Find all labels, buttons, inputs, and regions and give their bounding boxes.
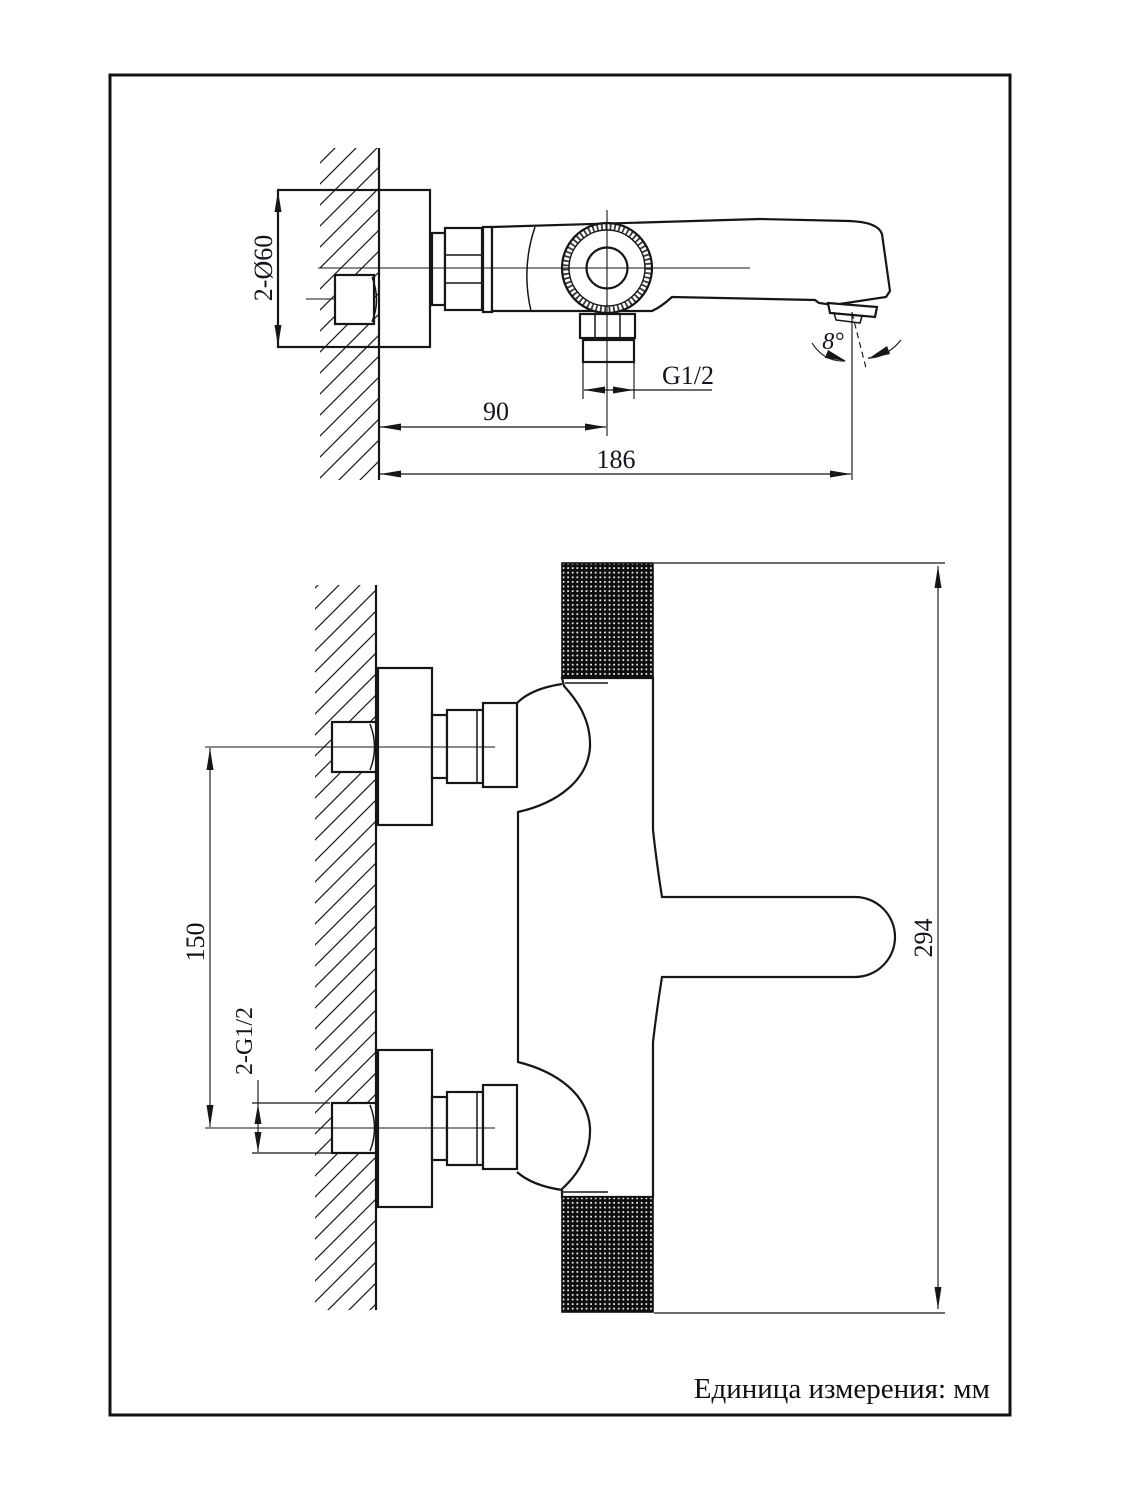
dim-wall-to-outlet: 90	[380, 397, 606, 431]
side-view: 2-Ø60 G1/2 90 186	[249, 148, 901, 480]
connector-collar	[483, 227, 492, 312]
connector-block-bottom	[483, 1085, 517, 1169]
body-shoulder-top	[517, 684, 562, 703]
dim-label-outlet-thread: G1/2	[662, 361, 714, 390]
supply-fitting	[335, 275, 374, 324]
outlet-thread-pipe	[583, 340, 634, 362]
faucet-body-spout	[492, 219, 890, 311]
faucet-body-plan	[518, 678, 895, 1197]
body-shoulder-bottom	[517, 1172, 562, 1190]
dim-outlet-thread: G1/2	[583, 361, 714, 399]
technical-drawing-svg: 2-Ø60 G1/2 90 186	[0, 0, 1125, 1500]
connector-nut	[445, 228, 482, 310]
dim-label-overall-length: 294	[909, 919, 938, 958]
drawing-sheet: 2-Ø60 G1/2 90 186	[0, 0, 1125, 1500]
connector-block-top	[483, 703, 517, 787]
wall-hatch	[315, 585, 376, 1310]
dim-label-inlet-thread: 2-G1/2	[232, 1007, 258, 1075]
dim-label-spout-angle: 8°	[822, 329, 844, 355]
unit-note: Единица измерения: мм	[694, 1373, 990, 1405]
connector-neck	[432, 233, 445, 305]
dim-label-plate-diameter: 2-Ø60	[249, 235, 278, 301]
knurled-handle-bottom	[562, 1197, 653, 1312]
dim-label-inlet-center-distance: 150	[181, 923, 210, 962]
dim-label-wall-to-outlet: 90	[483, 397, 509, 426]
dim-inlet-center-distance: 150	[181, 748, 214, 1127]
dim-spout-angle: 8°	[812, 313, 901, 368]
knurled-handle-top	[562, 563, 653, 678]
plan-view: 294 150 2-G1/2	[181, 563, 945, 1313]
dim-label-wall-to-spout-tip: 186	[597, 445, 636, 474]
dim-plate-diameter: 2-Ø60	[249, 191, 282, 346]
